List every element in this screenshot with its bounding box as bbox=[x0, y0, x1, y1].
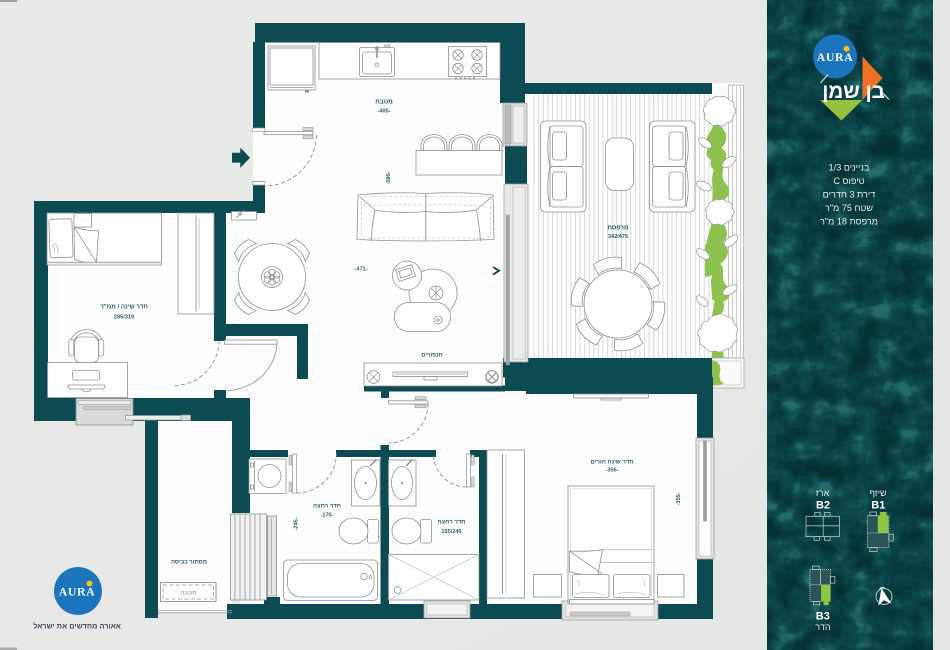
svg-text:ארז: ארז bbox=[816, 488, 830, 498]
svg-text:-170-: -170- bbox=[320, 513, 333, 519]
svg-text:תנפורים: תנפורים bbox=[421, 353, 442, 359]
svg-text:285/319: 285/319 bbox=[114, 315, 134, 321]
svg-text:B2: B2 bbox=[816, 500, 830, 512]
svg-text:שיזף: שיזף bbox=[869, 488, 887, 498]
svg-text:מסתור כביסה: מסתור כביסה bbox=[171, 560, 207, 566]
svg-text:-355-: -355- bbox=[676, 492, 682, 505]
svg-text:הדר: הדר bbox=[815, 622, 831, 632]
svg-text:חדר שינה / ממ"ד: חדר שינה / ממ"ד bbox=[100, 304, 148, 311]
svg-text:-245-: -245- bbox=[294, 517, 300, 530]
svg-text:בניינים 1/3: בניינים 1/3 bbox=[829, 163, 870, 173]
svg-text:-585-: -585- bbox=[386, 171, 392, 184]
svg-text:342/475: 342/475 bbox=[608, 234, 628, 240]
svg-text:-471-: -471- bbox=[354, 267, 367, 273]
svg-text:-405-: -405- bbox=[377, 109, 390, 115]
svg-text:AURA: AURA bbox=[59, 585, 95, 599]
svg-text:B1: B1 bbox=[871, 500, 885, 512]
svg-text:מטבח: מטבח bbox=[375, 99, 393, 106]
svg-text:AURA: AURA bbox=[817, 50, 853, 64]
svg-text:מרפסת: מרפסת bbox=[607, 225, 629, 232]
svg-text:אאורה מחדשים את ישראל: אאורה מחדשים את ישראל bbox=[33, 622, 121, 631]
svg-text:מכונה: מכונה bbox=[180, 591, 196, 597]
svg-text:טיפוס C: טיפוס C bbox=[833, 176, 864, 186]
svg-text:155/245: 155/245 bbox=[441, 529, 461, 535]
svg-text:דירת 3 חדרים: דירת 3 חדרים bbox=[823, 190, 876, 200]
svg-text:חדר שינה הורים: חדר שינה הורים bbox=[590, 460, 633, 466]
svg-text:חדר רחצה: חדר רחצה bbox=[437, 520, 465, 526]
svg-text:בן שמן: בן שמן bbox=[822, 80, 885, 103]
svg-text:מרפסת 18 מ"ר: מרפסת 18 מ"ר bbox=[820, 217, 878, 227]
svg-text:B3: B3 bbox=[816, 611, 830, 623]
svg-text:-355-: -355- bbox=[605, 468, 618, 474]
svg-text:שטח 75 מ"ר: שטח 75 מ"ר bbox=[825, 203, 873, 213]
svg-text:חדר רחצה: חדר רחצה bbox=[313, 504, 341, 510]
